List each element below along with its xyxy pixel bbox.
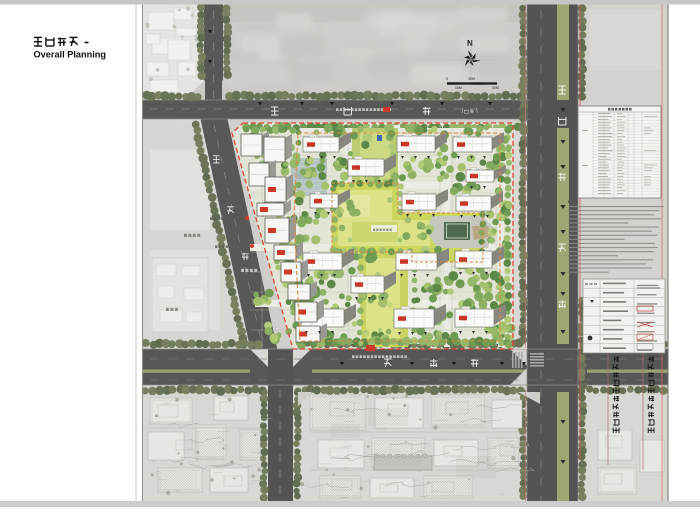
svg-text:Overall Planning: Overall Planning [34,50,107,60]
svg-text:30M: 30M [468,77,475,81]
svg-text:0: 0 [446,77,448,81]
svg-text:30M: 30M [492,86,499,90]
svg-text:N: N [467,39,473,48]
svg-text:10M: 10M [455,86,462,90]
